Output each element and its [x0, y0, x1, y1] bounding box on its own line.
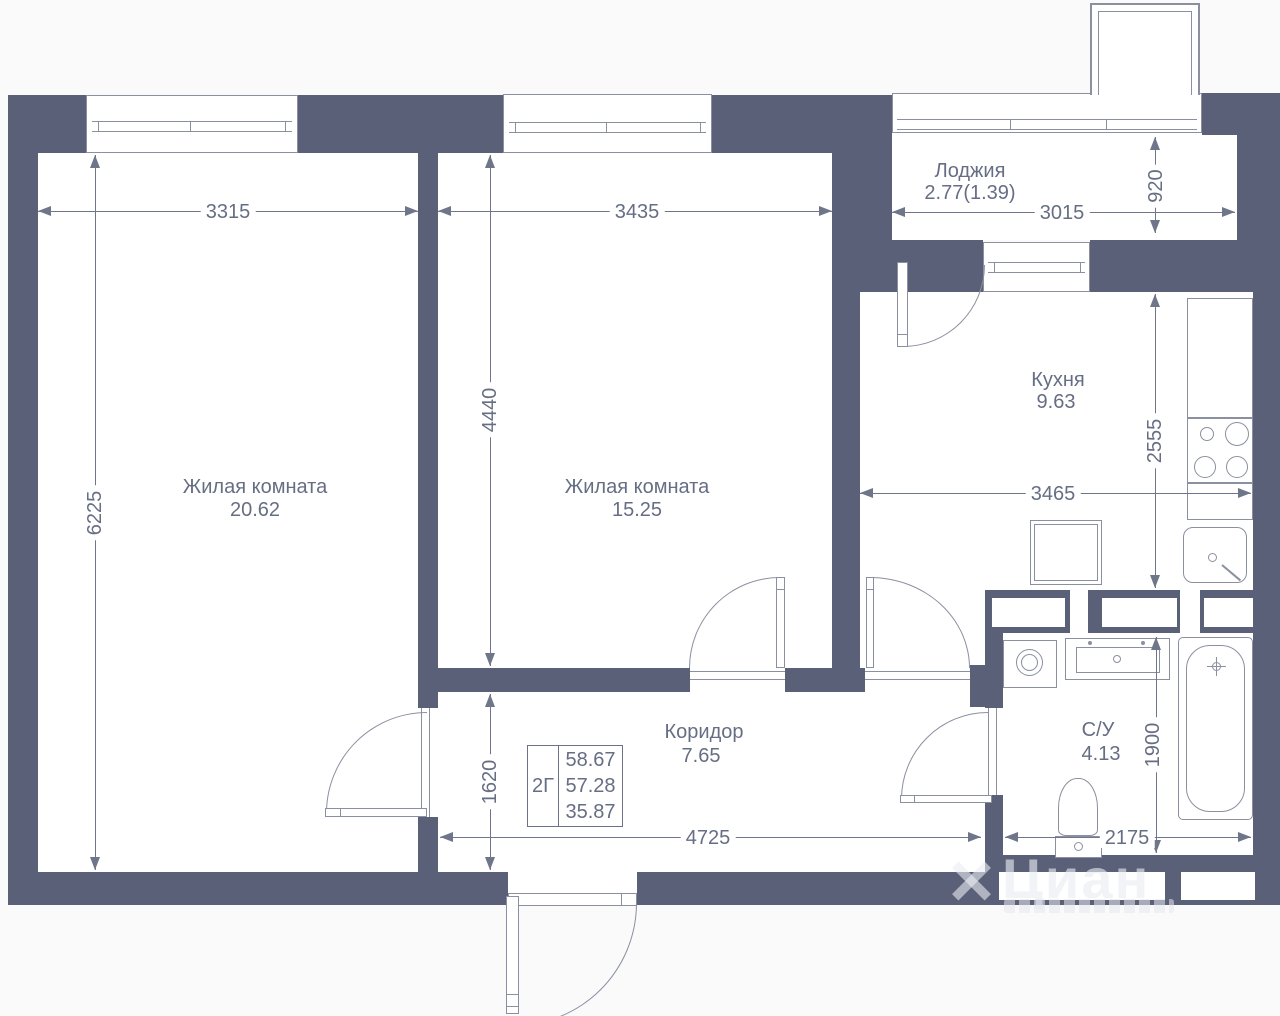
window-2-glazing	[509, 122, 706, 123]
window-2-glazing	[509, 132, 706, 133]
arrow-down-icon	[90, 857, 100, 870]
area-living: 35.87	[565, 799, 615, 825]
door-leaf-cap	[866, 589, 874, 590]
door-frame-line	[429, 708, 430, 817]
balcony-block-divider	[994, 262, 995, 273]
wall-slot	[1070, 590, 1088, 633]
wall-bottom-left	[8, 872, 508, 905]
wall-room2-kitchen	[832, 292, 860, 668]
dimension-label: 3315	[201, 202, 256, 222]
vent-shaft	[1181, 872, 1255, 900]
arrow-up-icon	[1150, 137, 1160, 150]
arrow-down-icon	[1150, 220, 1160, 233]
wall-right	[1253, 240, 1280, 905]
wall-kitchen-top-right	[1090, 240, 1253, 292]
dimension-label: 3015	[1035, 203, 1090, 223]
room-area-corridor: 7.65	[682, 746, 721, 766]
door-leaf-cap	[776, 589, 785, 590]
dimension-label: 3435	[610, 202, 665, 222]
room-label-bathroom: С/У	[1082, 720, 1115, 740]
arrow-left-icon	[438, 206, 451, 216]
room-area-kitchen: 9.63	[1037, 392, 1076, 412]
room-area-bathroom: 4.13	[1082, 744, 1121, 764]
area-values: 58.67 57.28 35.87	[559, 746, 622, 826]
wall-top-seg3	[712, 95, 892, 153]
wall-top-seg2	[298, 95, 503, 153]
door-frame-line	[996, 708, 997, 795]
floor-plan: 3315 3435 3015 920 6225 4440 2555 3465 1…	[0, 0, 1280, 1016]
arrow-up-icon	[1151, 637, 1161, 650]
arrow-right-icon	[819, 206, 832, 216]
plan-type: 2Г	[528, 746, 559, 826]
room-label-kitchen: Кухня	[1031, 370, 1085, 390]
kitchen-sink-drain	[1208, 553, 1217, 562]
arrow-left-icon	[440, 832, 453, 842]
arrow-right-icon	[1238, 488, 1251, 498]
wall-corridor-top-b	[785, 668, 865, 692]
door-leaf	[506, 896, 519, 1014]
arrow-left-icon	[1005, 832, 1018, 842]
watermark-subtext-blur	[1004, 899, 1174, 913]
door-leaf-cap	[506, 994, 519, 995]
dimension-label: 4440	[480, 383, 500, 438]
room-label-living-2: Жилая комната	[565, 477, 709, 497]
arrow-right-icon	[968, 832, 981, 842]
window-1-glazing	[92, 131, 292, 132]
window-2-divider	[700, 122, 701, 133]
dimension-label: 2555	[1145, 414, 1165, 469]
door-frame-line	[865, 679, 970, 680]
loggia-window-glazing	[897, 129, 1197, 130]
door-frame-line	[988, 708, 989, 795]
window-1-glazing	[92, 121, 292, 122]
window-2	[503, 94, 712, 153]
vent-shaft	[992, 598, 1065, 627]
wall-corridor-top-a	[438, 668, 690, 692]
bathtub-drain-cross	[1216, 657, 1217, 676]
dimension-label: 1900	[1143, 718, 1163, 773]
area-without-loggia: 57.28	[565, 773, 615, 799]
wall-slot	[1180, 590, 1200, 633]
room-label-loggia: Лоджия	[935, 161, 1006, 181]
door-leaf	[776, 577, 785, 668]
room-label-living-1: Жилая комната	[183, 477, 327, 497]
arrow-up-icon	[1150, 294, 1160, 307]
door-leaf-cap	[914, 795, 915, 803]
room-label-corridor: Коридор	[665, 722, 744, 742]
arrow-down-icon	[485, 857, 495, 870]
wall-loggia-right-a	[1202, 93, 1280, 135]
arrow-right-icon	[405, 206, 418, 216]
door-frame-line	[690, 671, 785, 672]
stove-burner	[1200, 427, 1214, 441]
balcony-block-divider	[1080, 262, 1081, 273]
loggia-window-divider	[1106, 119, 1107, 130]
watermark-logo-icon	[948, 858, 994, 904]
wall-bottom-mid	[637, 872, 985, 905]
area-total: 58.67	[565, 747, 615, 773]
balcony-door-window-block	[983, 242, 1090, 292]
arrow-down-icon	[1150, 575, 1160, 588]
vanity-faucet	[1113, 655, 1121, 663]
door-arc	[514, 903, 637, 1016]
room-area-living-1: 20.62	[230, 500, 280, 520]
loggia-window-glazing	[897, 119, 1197, 120]
room-area-loggia: 2.77(1.39)	[924, 183, 1015, 203]
toilet-bowl	[1058, 778, 1098, 836]
window-1-divider	[98, 121, 99, 132]
arrow-left-icon	[860, 488, 873, 498]
dimension-label: 1620	[480, 755, 500, 810]
room-area-living-2: 15.25	[612, 500, 662, 520]
washing-machine-drum-inner	[1021, 654, 1038, 671]
arrow-left-icon	[892, 207, 905, 217]
wall-loggia-right-b	[1237, 135, 1280, 240]
kitchen-counter-top	[1187, 298, 1253, 418]
dimension-label: 2175	[1100, 828, 1155, 848]
apartment-info-table: 2Г 58.67 57.28 35.87	[527, 745, 623, 827]
balcony-outline-inner	[1098, 11, 1192, 95]
door-leaf-cap	[340, 808, 341, 817]
vent-shaft	[1102, 598, 1177, 627]
wall-left	[8, 95, 38, 905]
stove-burner	[1194, 456, 1216, 478]
window-2-divider	[515, 122, 516, 133]
vanity-dot	[1141, 641, 1145, 645]
vent-shaft	[1204, 598, 1253, 627]
arrow-up-icon	[90, 155, 100, 168]
arrow-down-icon	[485, 653, 495, 666]
door-leaf	[866, 577, 874, 668]
dimension-label: 3465	[1026, 484, 1081, 504]
kitchen-cabinet-inner	[1034, 524, 1098, 581]
arrow-up-icon	[485, 155, 495, 168]
stove-burner	[1225, 422, 1249, 446]
loggia-window-divider	[1010, 119, 1011, 130]
arrow-right-icon	[1222, 207, 1235, 217]
dimension-label: 920	[1146, 164, 1166, 207]
window-1-divider	[190, 121, 191, 132]
stove-burner	[1226, 456, 1248, 478]
arrow-right-icon	[1238, 832, 1251, 842]
dimension-label: 4725	[681, 828, 736, 848]
window-1	[86, 95, 298, 153]
window-1-divider	[285, 121, 286, 132]
door-leaf-cap	[897, 334, 908, 335]
arrow-left-icon	[38, 206, 51, 216]
door-leaf-cap	[506, 1006, 519, 1007]
window-2-divider	[606, 122, 607, 133]
loggia-window-band	[892, 93, 1202, 133]
balcony-block-glazing	[988, 262, 1085, 263]
arrow-up-icon	[485, 694, 495, 707]
door-frame-line	[865, 671, 970, 672]
vanity-dot	[1088, 641, 1092, 645]
dimension-label: 6225	[85, 486, 105, 541]
balcony-block-glazing	[988, 272, 1085, 273]
door-frame-line	[690, 679, 785, 680]
